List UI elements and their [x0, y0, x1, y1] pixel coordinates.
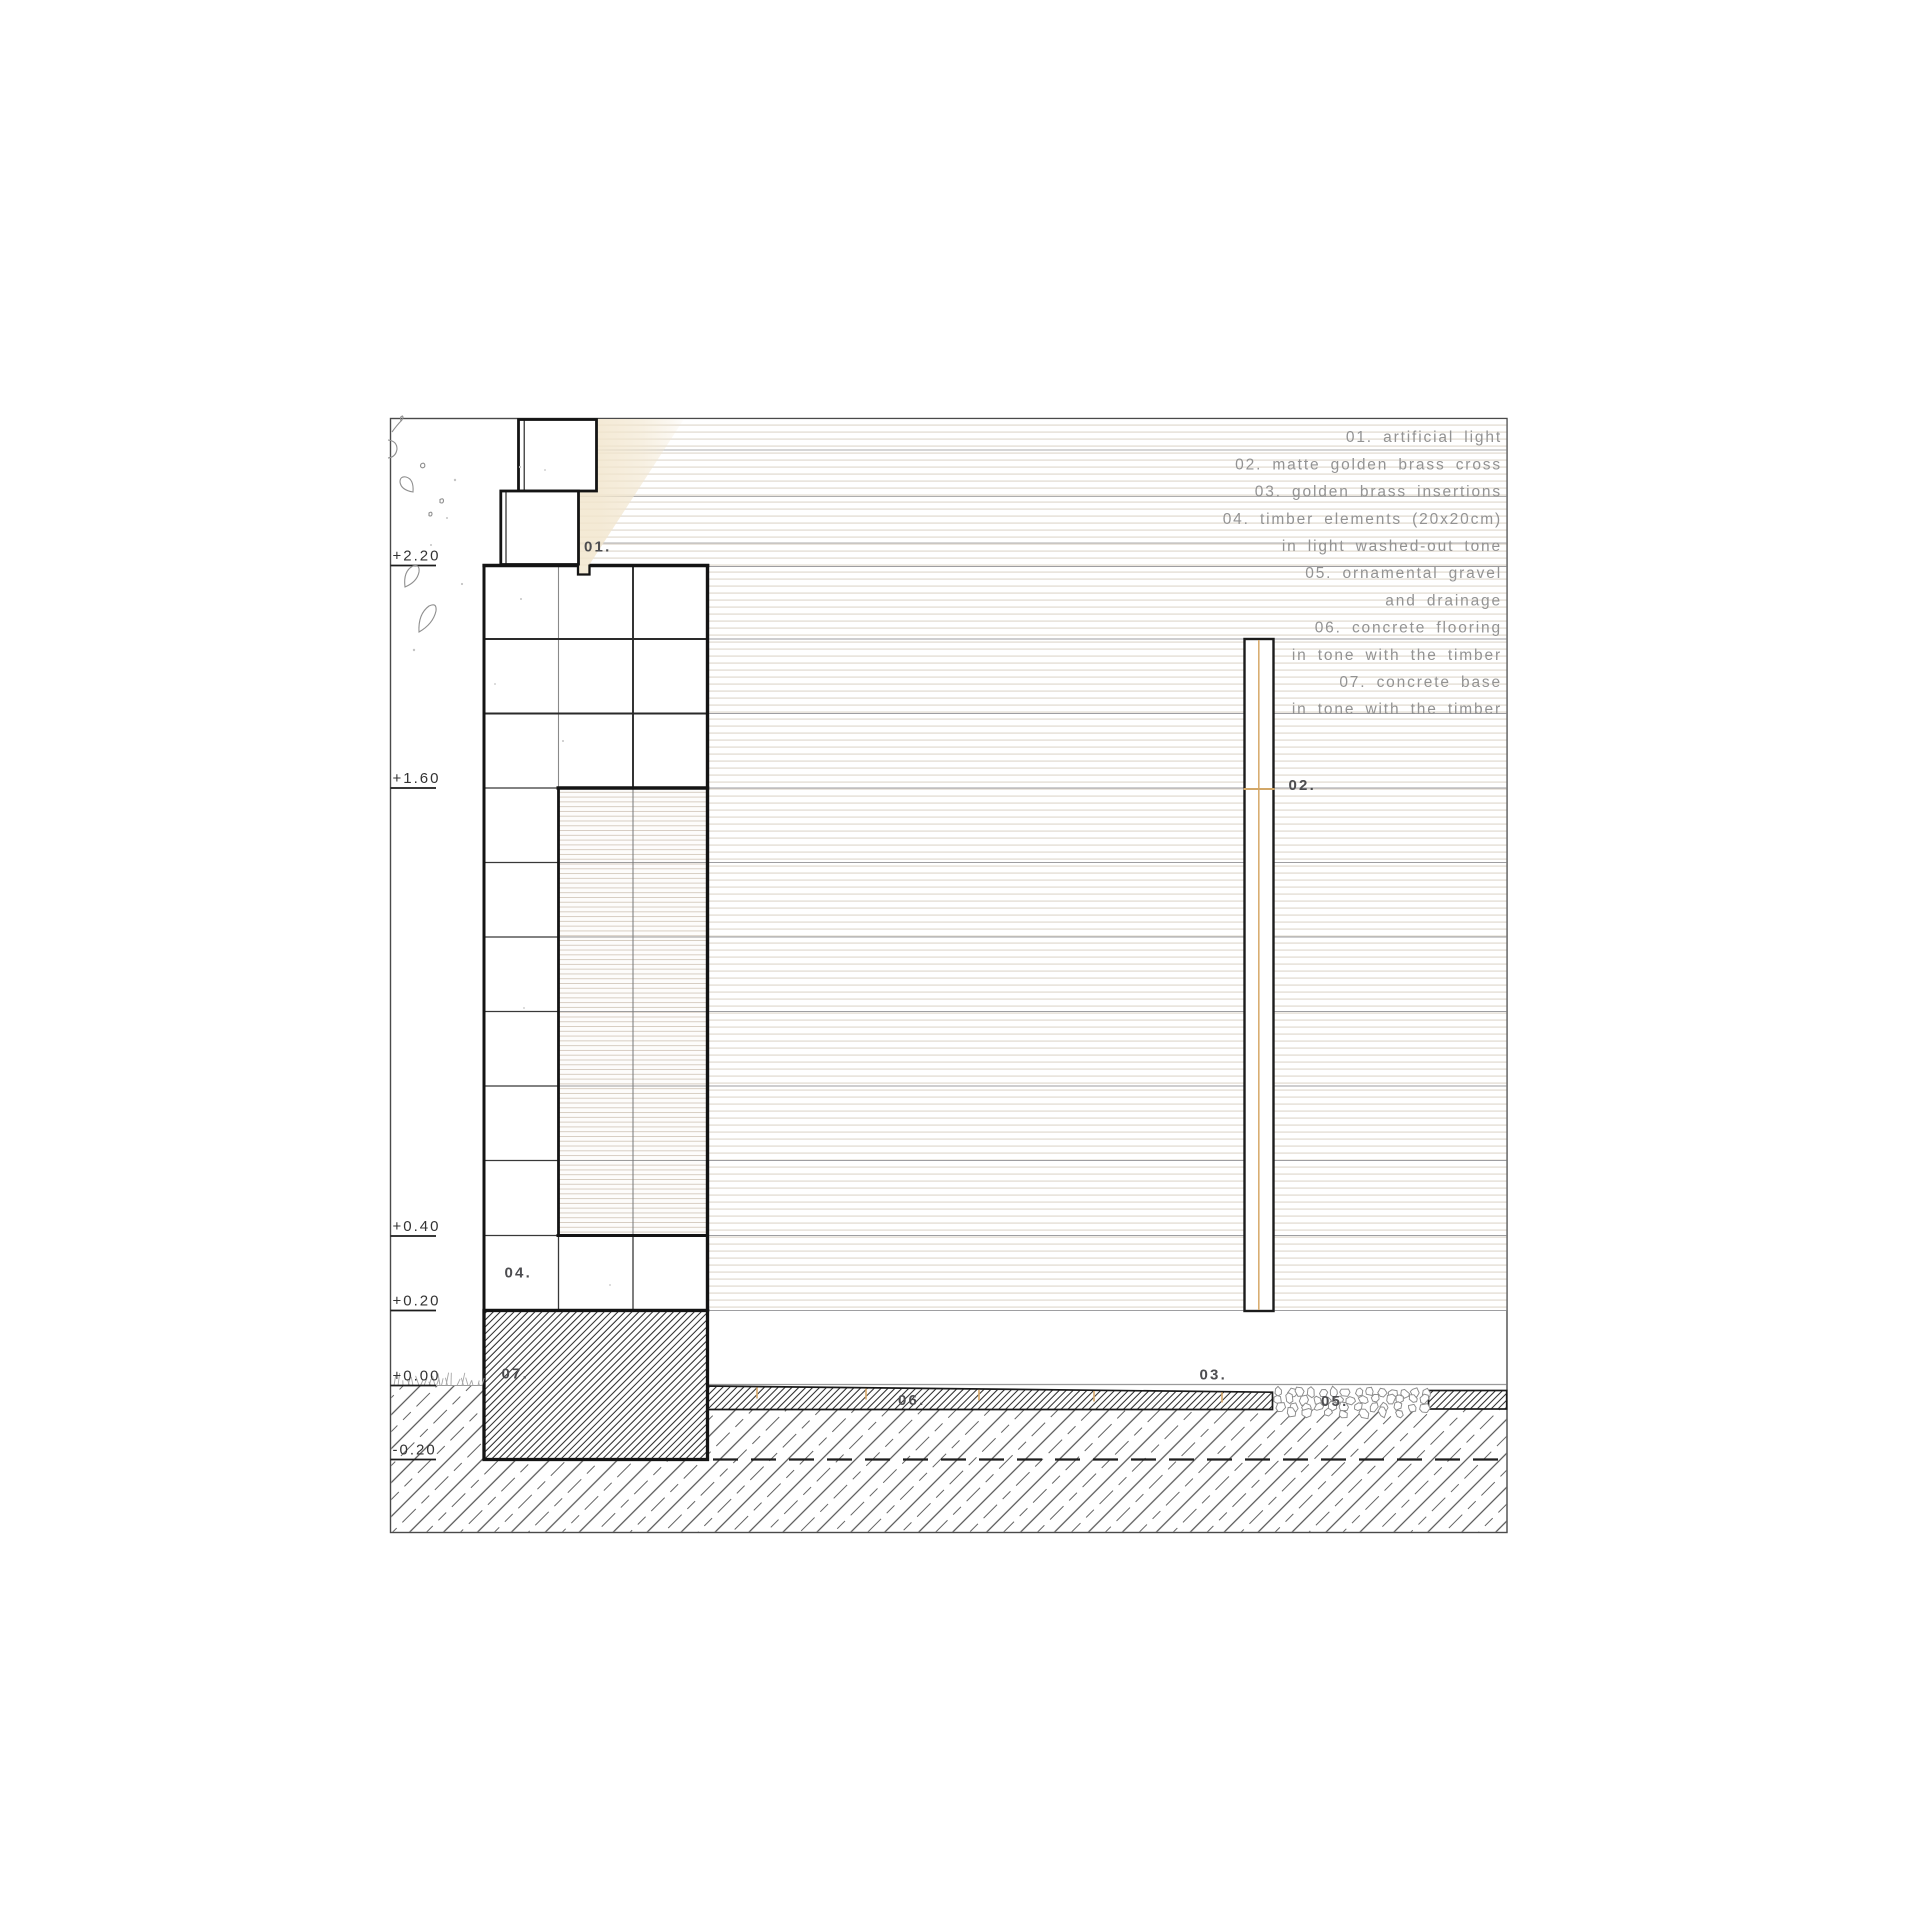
svg-text:01. artificial light: 01. artificial light	[1346, 429, 1502, 446]
svg-text:02.: 02.	[1289, 777, 1316, 794]
svg-text:+2.20: +2.20	[393, 548, 441, 565]
svg-text:-0.20: -0.20	[393, 1442, 437, 1459]
svg-text:07. concrete base: 07. concrete base	[1339, 674, 1502, 691]
svg-text:in tone with the timber: in tone with the timber	[1292, 647, 1502, 664]
svg-text:03.: 03.	[1200, 1367, 1227, 1384]
svg-text:03. golden brass insertions: 03. golden brass insertions	[1255, 484, 1502, 501]
svg-text:05. ornamental gravel: 05. ornamental gravel	[1305, 565, 1502, 582]
svg-text:and drainage: and drainage	[1385, 592, 1502, 609]
svg-text:06.: 06.	[898, 1392, 925, 1409]
svg-text:07.: 07.	[502, 1366, 529, 1383]
svg-text:in light washed-out tone: in light washed-out tone	[1282, 538, 1502, 555]
svg-text:+1.60: +1.60	[393, 770, 441, 787]
svg-text:in tone with the timber: in tone with the timber	[1292, 701, 1502, 718]
svg-text:04.: 04.	[505, 1265, 532, 1282]
svg-text:+0.20: +0.20	[393, 1293, 441, 1310]
svg-text:02. matte golden brass cross: 02. matte golden brass cross	[1235, 456, 1502, 473]
svg-text:06. concrete flooring: 06. concrete flooring	[1315, 620, 1502, 637]
svg-text:05.: 05.	[1321, 1393, 1348, 1410]
svg-text:+0.40: +0.40	[393, 1218, 441, 1235]
svg-text:04. timber elements (20x20cm): 04. timber elements (20x20cm)	[1223, 511, 1502, 528]
svg-text:+0.00: +0.00	[393, 1368, 441, 1385]
svg-text:01.: 01.	[584, 539, 611, 556]
